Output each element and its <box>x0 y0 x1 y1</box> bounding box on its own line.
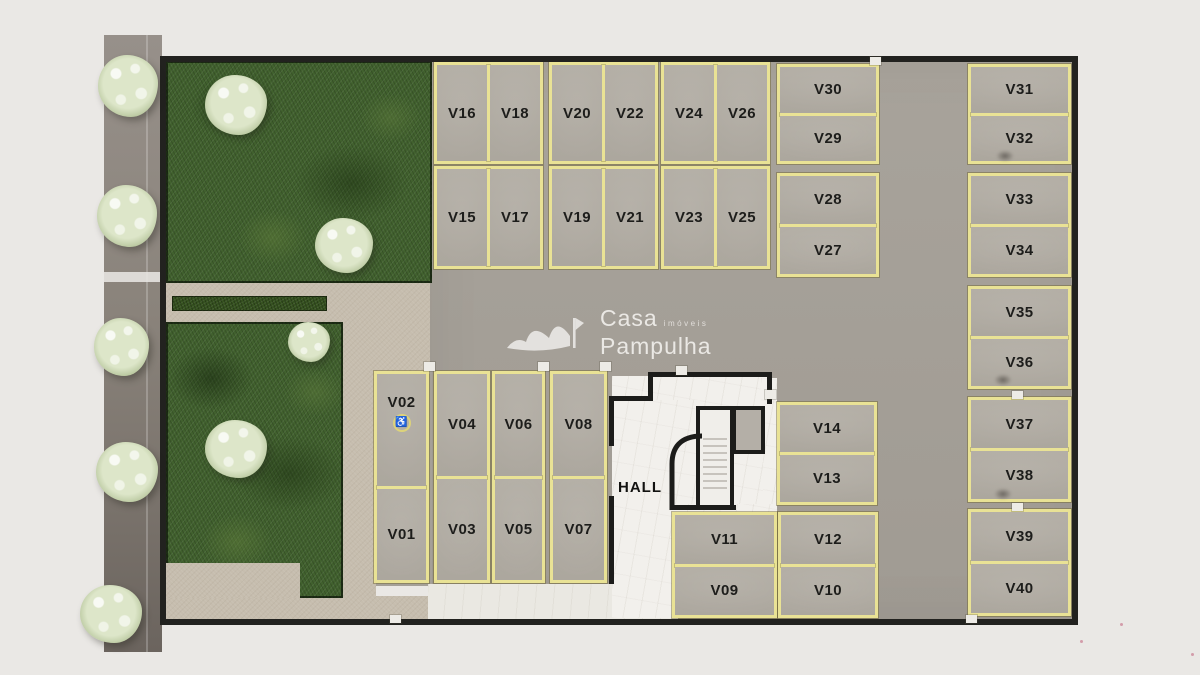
parking-space-label: V16 <box>448 105 476 122</box>
parking-space-label: V08 <box>565 416 593 433</box>
parking-space-v17: V17 <box>490 169 540 266</box>
pampulha-church-icon <box>504 306 590 358</box>
parking-pair-v08-v07: V08V07 <box>550 371 607 583</box>
parking-pair-v20-v22: V20V22 <box>549 62 658 164</box>
parking-pair-v06-v05: V06V05 <box>492 371 545 583</box>
parking-space-label: V39 <box>1006 528 1034 545</box>
tree-icon <box>205 420 267 478</box>
tree-icon <box>315 218 373 273</box>
parking-space-label: V23 <box>675 209 703 226</box>
parking-space-label: V31 <box>1006 81 1034 98</box>
parking-space-label: V11 <box>711 531 738 548</box>
parking-pair-v37-v38: V37V38 <box>968 397 1071 502</box>
parking-pair-v12-v10: V12V10 <box>778 512 878 618</box>
parking-space-label: V10 <box>814 582 842 599</box>
parking-space-v01: V01 <box>377 489 426 581</box>
parking-pair-v28-v27: V28V27 <box>777 173 879 277</box>
parking-pair-v31-v32: V31V32 <box>968 64 1071 164</box>
parking-space-v05: V05 <box>495 479 542 581</box>
parking-space-label: V38 <box>1006 467 1034 484</box>
parking-space-v35: V35 <box>971 289 1068 336</box>
parking-space-v09: V09 <box>675 567 774 616</box>
parking-space-v38: V38 <box>971 451 1068 499</box>
parking-space-label: V21 <box>616 209 644 226</box>
tire-smudge <box>996 150 1014 162</box>
parking-space-v25: V25 <box>717 169 767 266</box>
parking-space-v20: V20 <box>552 65 602 161</box>
tree-icon <box>94 318 149 376</box>
parking-space-label: V12 <box>814 531 842 548</box>
parking-space-label: V36 <box>1006 354 1034 371</box>
parking-space-v32: V32 <box>971 116 1068 162</box>
parking-space-label: V26 <box>728 105 756 122</box>
tire-smudge <box>994 374 1012 386</box>
brand-tagline: imóveis <box>664 319 709 328</box>
brand-logo: Casaimóveis Pampulha <box>504 306 712 358</box>
parking-space-v23: V23 <box>664 169 714 266</box>
parking-space-v33: V33 <box>971 176 1068 224</box>
parking-pair-v16-v18: V16V18 <box>434 62 543 164</box>
parking-space-label: V25 <box>728 209 756 226</box>
parking-space-v11: V11 <box>675 515 774 564</box>
parking-space-v03: V03 <box>437 479 487 581</box>
parking-space-v40: V40 <box>971 564 1068 613</box>
parking-floorplan: HALL V16V18V20V22V24V26V15V17V19V21V23V2… <box>0 0 1200 675</box>
site-boundary-top <box>160 56 1078 62</box>
parking-space-label: V05 <box>505 521 533 538</box>
parking-space-label: V19 <box>563 209 591 226</box>
brand-name: Casa <box>600 305 658 331</box>
parking-space-label: V15 <box>448 209 476 226</box>
parking-space-label: V09 <box>711 582 739 599</box>
parking-space-label: V32 <box>1006 130 1034 147</box>
site-boundary-bottom <box>160 619 1078 625</box>
parking-space-label: V34 <box>1006 242 1034 259</box>
accessible-parking-icon: ♿ <box>393 414 411 432</box>
parking-space-v04: V04 <box>437 374 487 476</box>
column-marker <box>765 390 776 399</box>
parking-space-label: V01 <box>388 526 416 543</box>
parking-space-v12: V12 <box>781 515 875 564</box>
parking-space-label: V24 <box>675 105 703 122</box>
parking-space-label: V03 <box>448 521 476 538</box>
parking-space-v07: V07 <box>553 479 604 581</box>
parking-space-v24: V24 <box>664 65 714 161</box>
parking-pair-v15-v17: V15V17 <box>434 166 543 269</box>
parking-space-label: V07 <box>565 521 593 538</box>
parking-pair-v24-v26: V24V26 <box>661 62 770 164</box>
tire-smudge <box>994 488 1012 500</box>
parking-space-v26: V26 <box>717 65 767 161</box>
tree-icon <box>97 185 157 247</box>
brand-name-2: Pampulha <box>600 335 712 357</box>
tree-icon <box>288 322 330 362</box>
parking-space-v10: V10 <box>781 567 875 616</box>
parking-pair-v30-v29: V30V29 <box>777 64 879 164</box>
parking-space-v28: V28 <box>780 176 876 224</box>
parking-pair-v14-v13: V14V13 <box>777 402 877 505</box>
site-boundary-right <box>1072 56 1078 622</box>
parking-space-v29: V29 <box>780 116 876 162</box>
parking-space-v16: V16 <box>437 65 487 161</box>
pink-speck <box>1191 653 1194 656</box>
parking-space-label: V27 <box>814 242 842 259</box>
column-marker <box>424 362 435 371</box>
parking-space-label: V18 <box>501 105 529 122</box>
parking-space-label: V22 <box>616 105 644 122</box>
parking-space-v36: V36 <box>971 339 1068 386</box>
parking-pair-v33-v34: V33V34 <box>968 173 1071 277</box>
pink-speck <box>1120 623 1123 626</box>
tree-icon <box>205 75 267 135</box>
column-marker <box>538 362 549 371</box>
parking-space-v13: V13 <box>780 455 874 502</box>
parking-pair-v11-v09: V11V09 <box>672 512 777 618</box>
parking-space-label: V20 <box>563 105 591 122</box>
parking-space-v37: V37 <box>971 400 1068 448</box>
parking-pair-v19-v21: V19V21 <box>549 166 658 269</box>
parking-space-v39: V39 <box>971 512 1068 561</box>
parking-space-v15: V15 <box>437 169 487 266</box>
column-marker <box>966 615 977 623</box>
pink-speck <box>1080 640 1083 643</box>
site-boundary-left <box>160 56 166 625</box>
tree-icon <box>80 585 142 643</box>
column-marker <box>1012 503 1023 511</box>
parking-space-v08: V08 <box>553 374 604 476</box>
parking-space-v02: V02♿ <box>377 374 426 486</box>
parking-space-v18: V18 <box>490 65 540 161</box>
tree-icon <box>96 442 158 502</box>
parking-space-v30: V30 <box>780 67 876 113</box>
parking-space-label: V30 <box>814 81 842 98</box>
column-marker <box>870 57 881 65</box>
column-marker <box>600 362 611 371</box>
parking-space-label: V40 <box>1006 580 1034 597</box>
parking-space-v31: V31 <box>971 67 1068 113</box>
column-marker <box>390 615 401 623</box>
parking-pair-v39-v40: V39V40 <box>968 509 1071 616</box>
column-marker <box>676 366 687 375</box>
parking-space-label: V33 <box>1006 191 1034 208</box>
parking-space-v06: V06 <box>495 374 542 476</box>
parking-space-v34: V34 <box>971 227 1068 275</box>
column-marker <box>1012 391 1023 399</box>
parking-space-label: V28 <box>814 191 842 208</box>
parking-space-label: V02 <box>388 394 416 411</box>
parking-pair-v04-v03: V04V03 <box>434 371 490 583</box>
parking-pair-v02-v01: V02♿V01 <box>374 371 429 583</box>
parking-space-v21: V21 <box>605 169 655 266</box>
parking-pair-v35-v36: V35V36 <box>968 286 1071 389</box>
parking-space-label: V04 <box>448 416 476 433</box>
parking-space-label: V14 <box>813 420 841 437</box>
parking-space-label: V06 <box>505 416 533 433</box>
parking-space-label: V29 <box>814 130 842 147</box>
parking-space-v19: V19 <box>552 169 602 266</box>
tree-icon <box>98 55 158 117</box>
parking-space-label: V13 <box>813 470 841 487</box>
parking-space-label: V17 <box>501 209 529 226</box>
parking-space-label: V37 <box>1006 416 1034 433</box>
parking-space-v27: V27 <box>780 227 876 275</box>
parking-space-v22: V22 <box>605 65 655 161</box>
parking-pair-v23-v25: V23V25 <box>661 166 770 269</box>
parking-space-v14: V14 <box>780 405 874 452</box>
parking-space-label: V35 <box>1006 304 1034 321</box>
